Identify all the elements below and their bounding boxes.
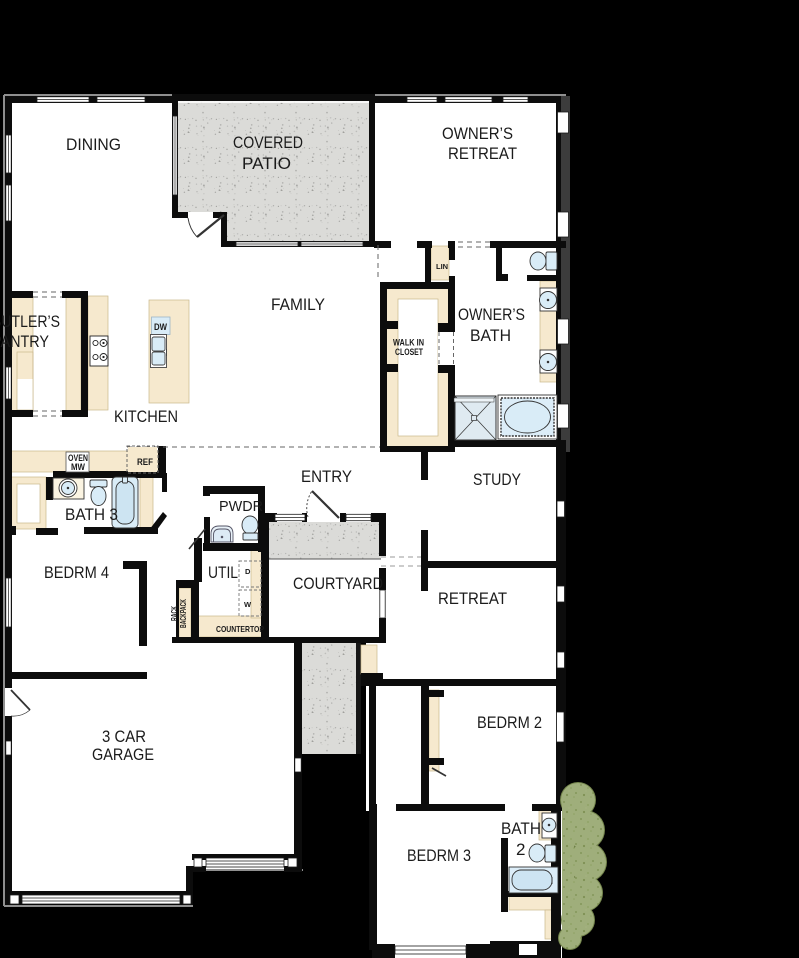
svg-text:REF: REF [137,457,153,467]
svg-text:W: W [244,600,252,609]
svg-text:PANTRY: PANTRY [0,332,49,351]
svg-text:PATIO: PATIO [242,154,291,173]
svg-text:DINING: DINING [66,135,121,154]
svg-text:BEDRM 3: BEDRM 3 [407,846,471,865]
svg-text:COUNTERTOP: COUNTERTOP [216,624,264,634]
svg-text:RACK: RACK [170,606,179,621]
svg-text:OWNER’S: OWNER’S [458,305,525,324]
svg-text:OWNER’S: OWNER’S [442,124,513,143]
svg-text:COURTYARD: COURTYARD [293,574,383,593]
svg-text:BATH 3: BATH 3 [65,505,118,524]
svg-text:LIN: LIN [436,262,448,271]
svg-text:D: D [245,567,251,576]
svg-text:3 CAR: 3 CAR [102,727,146,746]
svg-text:WALK IN: WALK IN [393,338,424,348]
svg-text:KITCHEN: KITCHEN [114,407,178,426]
svg-text:2: 2 [516,840,525,859]
svg-text:FAMILY: FAMILY [271,295,325,314]
svg-text:STUDY: STUDY [473,470,521,489]
svg-text:MW: MW [71,462,85,472]
svg-text:RETREAT: RETREAT [438,589,507,608]
svg-text:BACKPACK: BACKPACK [179,599,188,628]
svg-text:PWDR: PWDR [219,498,263,515]
svg-text:ENTRY: ENTRY [301,467,352,486]
svg-text:RETREAT: RETREAT [448,144,517,163]
svg-text:BATH: BATH [470,326,511,345]
svg-text:BATH: BATH [501,819,541,838]
svg-text:GARAGE: GARAGE [92,745,154,764]
svg-text:DW: DW [154,322,167,332]
svg-text:BUTLER’S: BUTLER’S [0,312,60,331]
svg-text:BEDRM 4: BEDRM 4 [44,563,109,582]
svg-text:COVERED: COVERED [233,133,303,152]
svg-text:BEDRM 2: BEDRM 2 [477,713,542,732]
svg-text:UTIL: UTIL [208,563,238,582]
svg-text:CLOSET: CLOSET [395,347,423,357]
